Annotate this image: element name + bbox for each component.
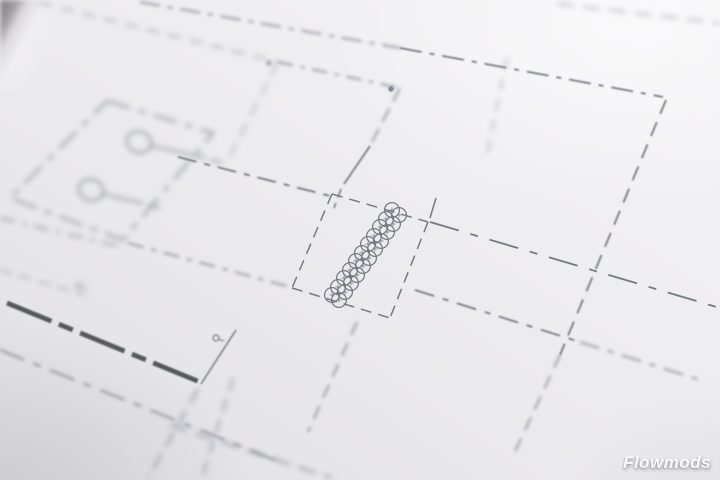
datum-ring-left-tail — [83, 288, 89, 290]
mid-horizontal-2-left — [415, 290, 580, 342]
dashed-vertical-below-band — [308, 322, 357, 432]
hole-stem-top-dash — [210, 160, 222, 164]
long-vertical-right-lower — [512, 355, 560, 458]
dashed-vertical-bottom-left-b — [202, 378, 233, 478]
datum-ring-center — [213, 335, 219, 341]
medium-dashed-lines — [0, 2, 700, 462]
perforation-band-group — [292, 194, 720, 318]
perforation-center-ticks — [330, 208, 402, 303]
hole-stem-bottom — [104, 194, 143, 204]
dashed-line-top-left — [40, 3, 278, 62]
panel-outline — [10, 101, 213, 240]
rect2-right-edge — [370, 88, 400, 146]
dashed-line-left-mid — [0, 270, 85, 295]
dashed-vertical-bottom-left-a — [148, 389, 198, 478]
vertical-dash-segment — [334, 189, 341, 208]
chain-line-from-panel-corner — [128, 243, 290, 287]
vertical-solid-segment — [344, 146, 370, 184]
chain-line-lower-left — [0, 350, 280, 462]
rect2-left-edge — [226, 62, 278, 164]
mid-horizontal-2-right — [580, 342, 700, 380]
faint-dashed-lines — [0, 3, 720, 295]
upper-left-panel — [0, 101, 332, 478]
sharp-dashed-lines — [178, 48, 666, 384]
dashed-line-top-right — [558, 4, 720, 23]
rect2-top-edge — [278, 62, 400, 88]
dot-marker-b — [389, 87, 392, 90]
mid-horizontal-1-corner-tick — [430, 198, 436, 218]
perforation-circles — [325, 203, 407, 308]
datum-ring-center-tail — [219, 340, 224, 342]
rect2-bottom-line — [178, 157, 330, 196]
thick-chain-line — [7, 303, 200, 382]
hole-circle-bottom — [76, 176, 106, 204]
long-top-line-left — [140, 2, 400, 48]
long-vertical-right — [560, 100, 666, 355]
watermark: Flowmods — [623, 453, 711, 473]
hole-circle-top — [124, 128, 154, 156]
long-top-line-right — [400, 48, 663, 97]
band-outline — [292, 194, 428, 318]
dashed-line-into-panel — [0, 218, 118, 246]
mid-horizontal-1 — [430, 222, 720, 308]
technical-drawing-photo — [0, 0, 720, 480]
dot-marker-a — [268, 62, 271, 65]
dashed-line-vertical-upper-mid — [486, 58, 507, 160]
datum-ring-left — [76, 283, 82, 289]
thick-chain-line-group — [7, 303, 200, 382]
